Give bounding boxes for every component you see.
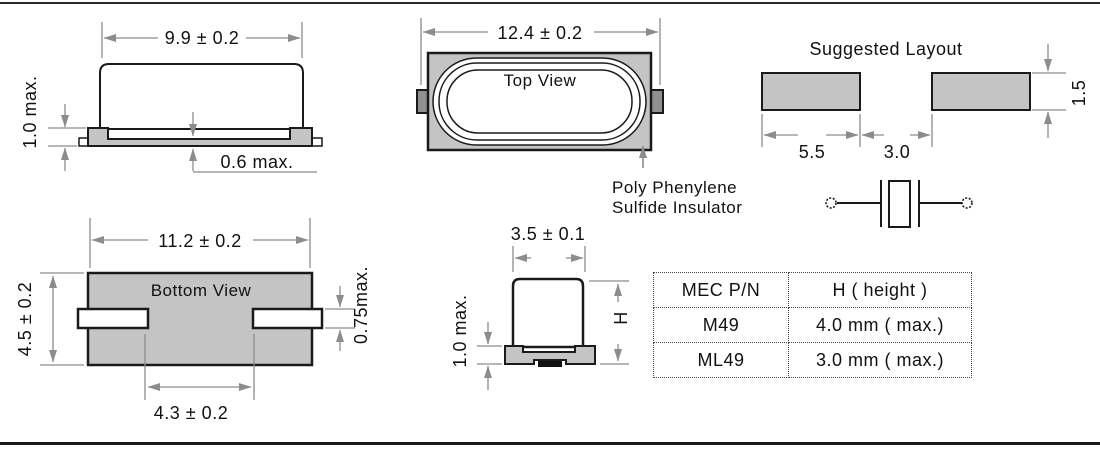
crystal-symbol-right-terminal bbox=[962, 198, 972, 208]
layout-pad-width-dim: 5.5 bbox=[799, 142, 826, 162]
crystal-symbol-left-terminal bbox=[826, 198, 836, 208]
suggested-layout-figure: Suggested Layout 5.5 3.0 1.5 bbox=[762, 39, 1089, 162]
table-row: ML49 3.0 mm ( max.) bbox=[654, 343, 972, 378]
side-view-standoff-dim: 0.6 max. bbox=[220, 152, 293, 172]
side-view-width-dim: 9.9 ± 0.2 bbox=[165, 28, 239, 48]
layout-pad-height-dim: 1.5 bbox=[1069, 80, 1089, 107]
end-view-width-dim: 3.5 ± 0.1 bbox=[511, 224, 585, 244]
end-view-insulator-strip bbox=[538, 361, 562, 367]
end-view-base-height-dim: 1.0 max. bbox=[450, 294, 470, 367]
side-view-can-outline bbox=[100, 64, 303, 129]
table-cell-pn: M49 bbox=[654, 308, 789, 343]
end-view-figure: 3.5 ± 0.1 1.0 max. H bbox=[450, 224, 631, 390]
table-header-pn: MEC P/N bbox=[654, 273, 789, 308]
side-view-base bbox=[88, 128, 312, 146]
layout-left-pad bbox=[762, 73, 860, 110]
crystal-package-drawing: 9.9 ± 0.2 1.0 max. 0.6 max. 12.4 ± 0.2 bbox=[0, 0, 1100, 449]
table-header-height: H ( height ) bbox=[789, 273, 972, 308]
bottom-view-lead-gap-dim: 4.3 ± 0.2 bbox=[154, 403, 228, 423]
table-row: M49 4.0 mm ( max.) bbox=[654, 308, 972, 343]
page-top-rule bbox=[0, 2, 1100, 4]
page-bottom-rule bbox=[0, 442, 1100, 445]
insulator-note-line2: Sulfide Insulator bbox=[612, 198, 742, 217]
crystal-symbol-resonator bbox=[889, 181, 910, 227]
bottom-view-right-lead bbox=[253, 309, 322, 328]
side-view-figure: 9.9 ± 0.2 1.0 max. 0.6 max. bbox=[20, 22, 322, 172]
bottom-view-label: Bottom View bbox=[151, 281, 252, 300]
top-view-label: Top View bbox=[504, 71, 577, 90]
table-cell-height: 3.0 mm ( max.) bbox=[789, 343, 972, 378]
height-spec-table: MEC P/N H ( height ) M49 4.0 mm ( max.) … bbox=[653, 272, 972, 378]
insulator-note-line1: Poly Phenylene bbox=[612, 178, 737, 197]
table-cell-pn: ML49 bbox=[654, 343, 789, 378]
table-cell-height: 4.0 mm ( max.) bbox=[789, 308, 972, 343]
bottom-view-figure: 11.2 ± 0.2 Bottom View 4.5 ± 0.2 0.75max… bbox=[15, 218, 371, 423]
top-view-right-tab bbox=[651, 90, 663, 113]
top-view-width-dim: 12.4 ± 0.2 bbox=[498, 23, 583, 43]
layout-pad-gap-dim: 3.0 bbox=[884, 142, 911, 162]
top-view-figure: 12.4 ± 0.2 Top View Poly Phenylene Sulfi… bbox=[417, 18, 742, 217]
bottom-view-width-dim: 11.2 ± 0.2 bbox=[158, 231, 242, 251]
end-view-can-outline bbox=[513, 279, 583, 347]
top-view-left-tab bbox=[417, 90, 428, 113]
end-view-height-label: H bbox=[611, 311, 631, 325]
suggested-layout-title: Suggested Layout bbox=[809, 39, 962, 59]
layout-right-pad bbox=[932, 73, 1030, 110]
crystal-symbol bbox=[826, 180, 972, 227]
bottom-view-lead-thickness-dim: 0.75max. bbox=[351, 266, 371, 344]
table-header-row: MEC P/N H ( height ) bbox=[654, 273, 972, 308]
bottom-view-height-dim: 4.5 ± 0.2 bbox=[15, 282, 35, 356]
side-view-base-height-dim: 1.0 max. bbox=[20, 75, 40, 148]
bottom-view-left-lead bbox=[78, 309, 148, 328]
drawing-canvas: 9.9 ± 0.2 1.0 max. 0.6 max. 12.4 ± 0.2 bbox=[0, 0, 1100, 449]
